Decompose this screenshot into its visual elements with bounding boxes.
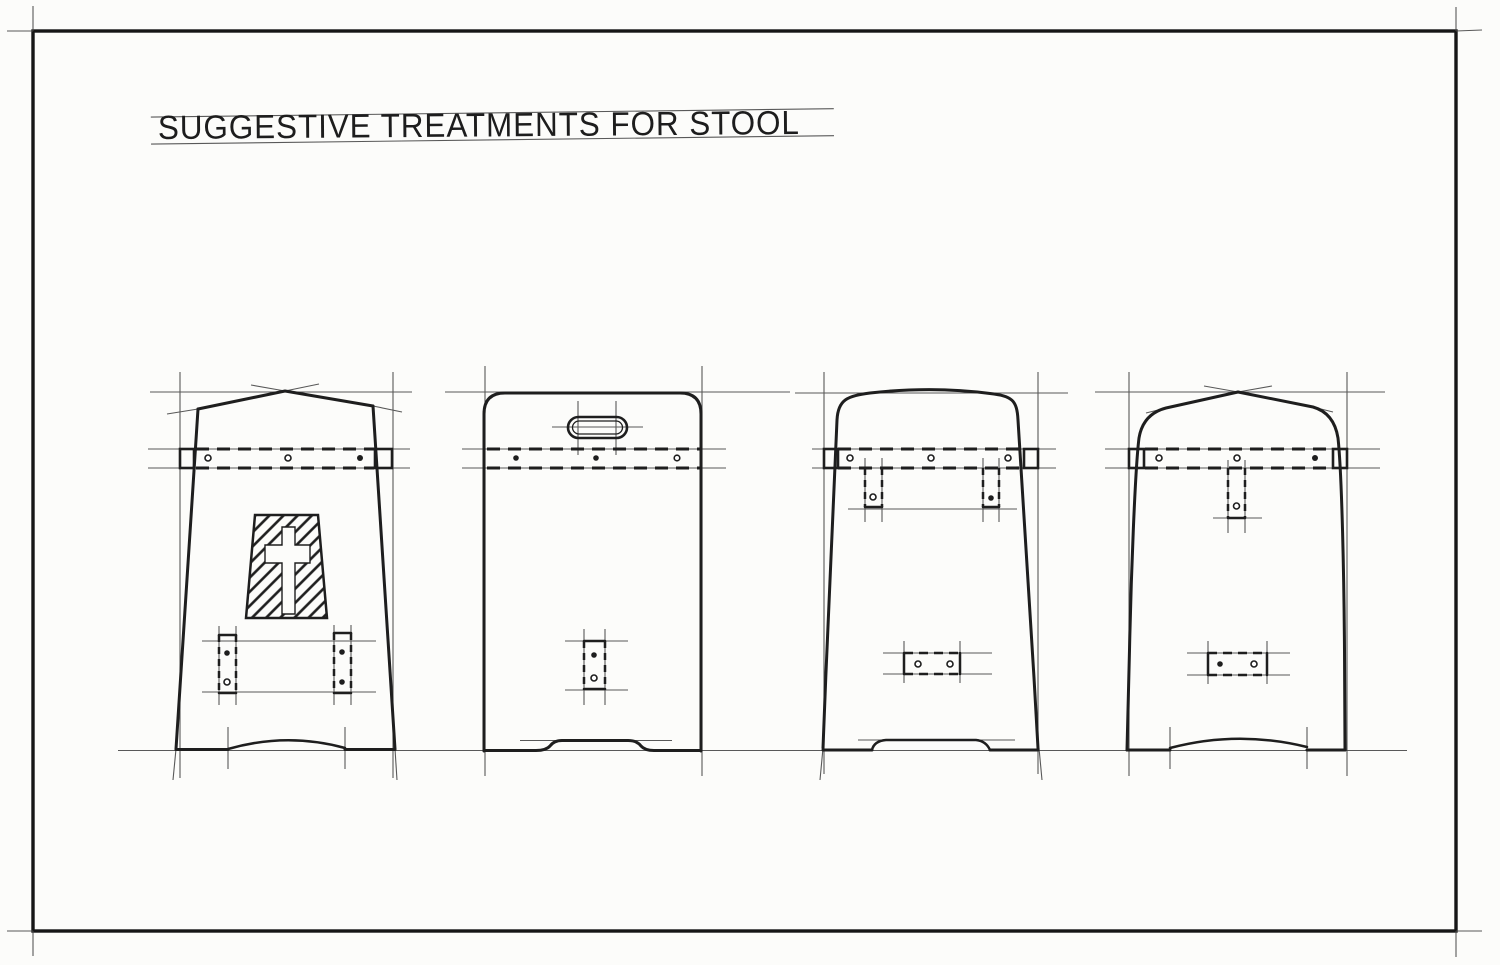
center-stretcher-mortise: [904, 653, 960, 674]
rail-pin: [1312, 455, 1318, 461]
construction-lines: [1095, 372, 1385, 776]
center-stretcher-mortise: [1208, 653, 1267, 675]
peaked-top-edge: [198, 391, 373, 409]
rail-end-right: [1024, 449, 1038, 468]
notched-foot-cutout: [484, 741, 701, 751]
seat-rail-hidden: [824, 449, 1038, 468]
center-stretcher-mortise: [584, 641, 605, 689]
seat-rail-hidden: [180, 449, 392, 468]
hanging-battens: [865, 468, 999, 507]
title-block: SUGGESTIVE TREATMENTS FOR STOOL: [151, 105, 834, 147]
rail-pin: [593, 455, 599, 461]
drafting-sheet: SUGGESTIVE TREATMENTS FOR STOOL: [0, 0, 1500, 965]
rail-pin: [674, 455, 680, 461]
sides-and-crowned-top: [823, 390, 1038, 748]
stool-drawing-4: [1095, 372, 1385, 776]
rail-pin: [357, 455, 363, 461]
cross-cutout-panel: [246, 515, 327, 618]
sides-and-top: [484, 393, 701, 751]
seat-rail-hidden: [1129, 449, 1347, 468]
rail-pin: [285, 455, 291, 461]
seat-rail-hidden: [487, 449, 700, 468]
center-batten: [1228, 468, 1245, 518]
stool-drawing-1: [148, 372, 412, 780]
stool-drawing-3: [795, 372, 1068, 780]
sheet-border: [7, 6, 1482, 957]
stretcher-mortises: [219, 633, 351, 693]
rail-pin: [1234, 455, 1240, 461]
left-shoulder-and-side: [1127, 392, 1238, 750]
stool-drawing-2: [445, 366, 790, 776]
border-corner-ticks: [7, 6, 1482, 957]
rail-pin: [1005, 455, 1011, 461]
arched-foot-cutout: [1170, 739, 1307, 748]
rail-pin: [928, 455, 934, 461]
panel-outline: [1127, 392, 1345, 750]
right-shoulder-and-side: [1238, 392, 1345, 750]
rail-pin: [1156, 455, 1162, 461]
rail-pin: [847, 455, 853, 461]
rail-pin: [513, 455, 519, 461]
drafting-sheet-svg: SUGGESTIVE TREATMENTS FOR STOOL: [0, 0, 1500, 965]
notched-foot-cutout: [872, 740, 990, 750]
panel-outline: [823, 390, 1038, 750]
rail-pin: [205, 455, 211, 461]
arched-foot-cutout: [228, 740, 345, 749]
rail-end-left: [180, 449, 194, 468]
sheet-title: SUGGESTIVE TREATMENTS FOR STOOL: [158, 105, 800, 147]
construction-lines: [445, 366, 790, 776]
panel-outline: [484, 393, 701, 751]
